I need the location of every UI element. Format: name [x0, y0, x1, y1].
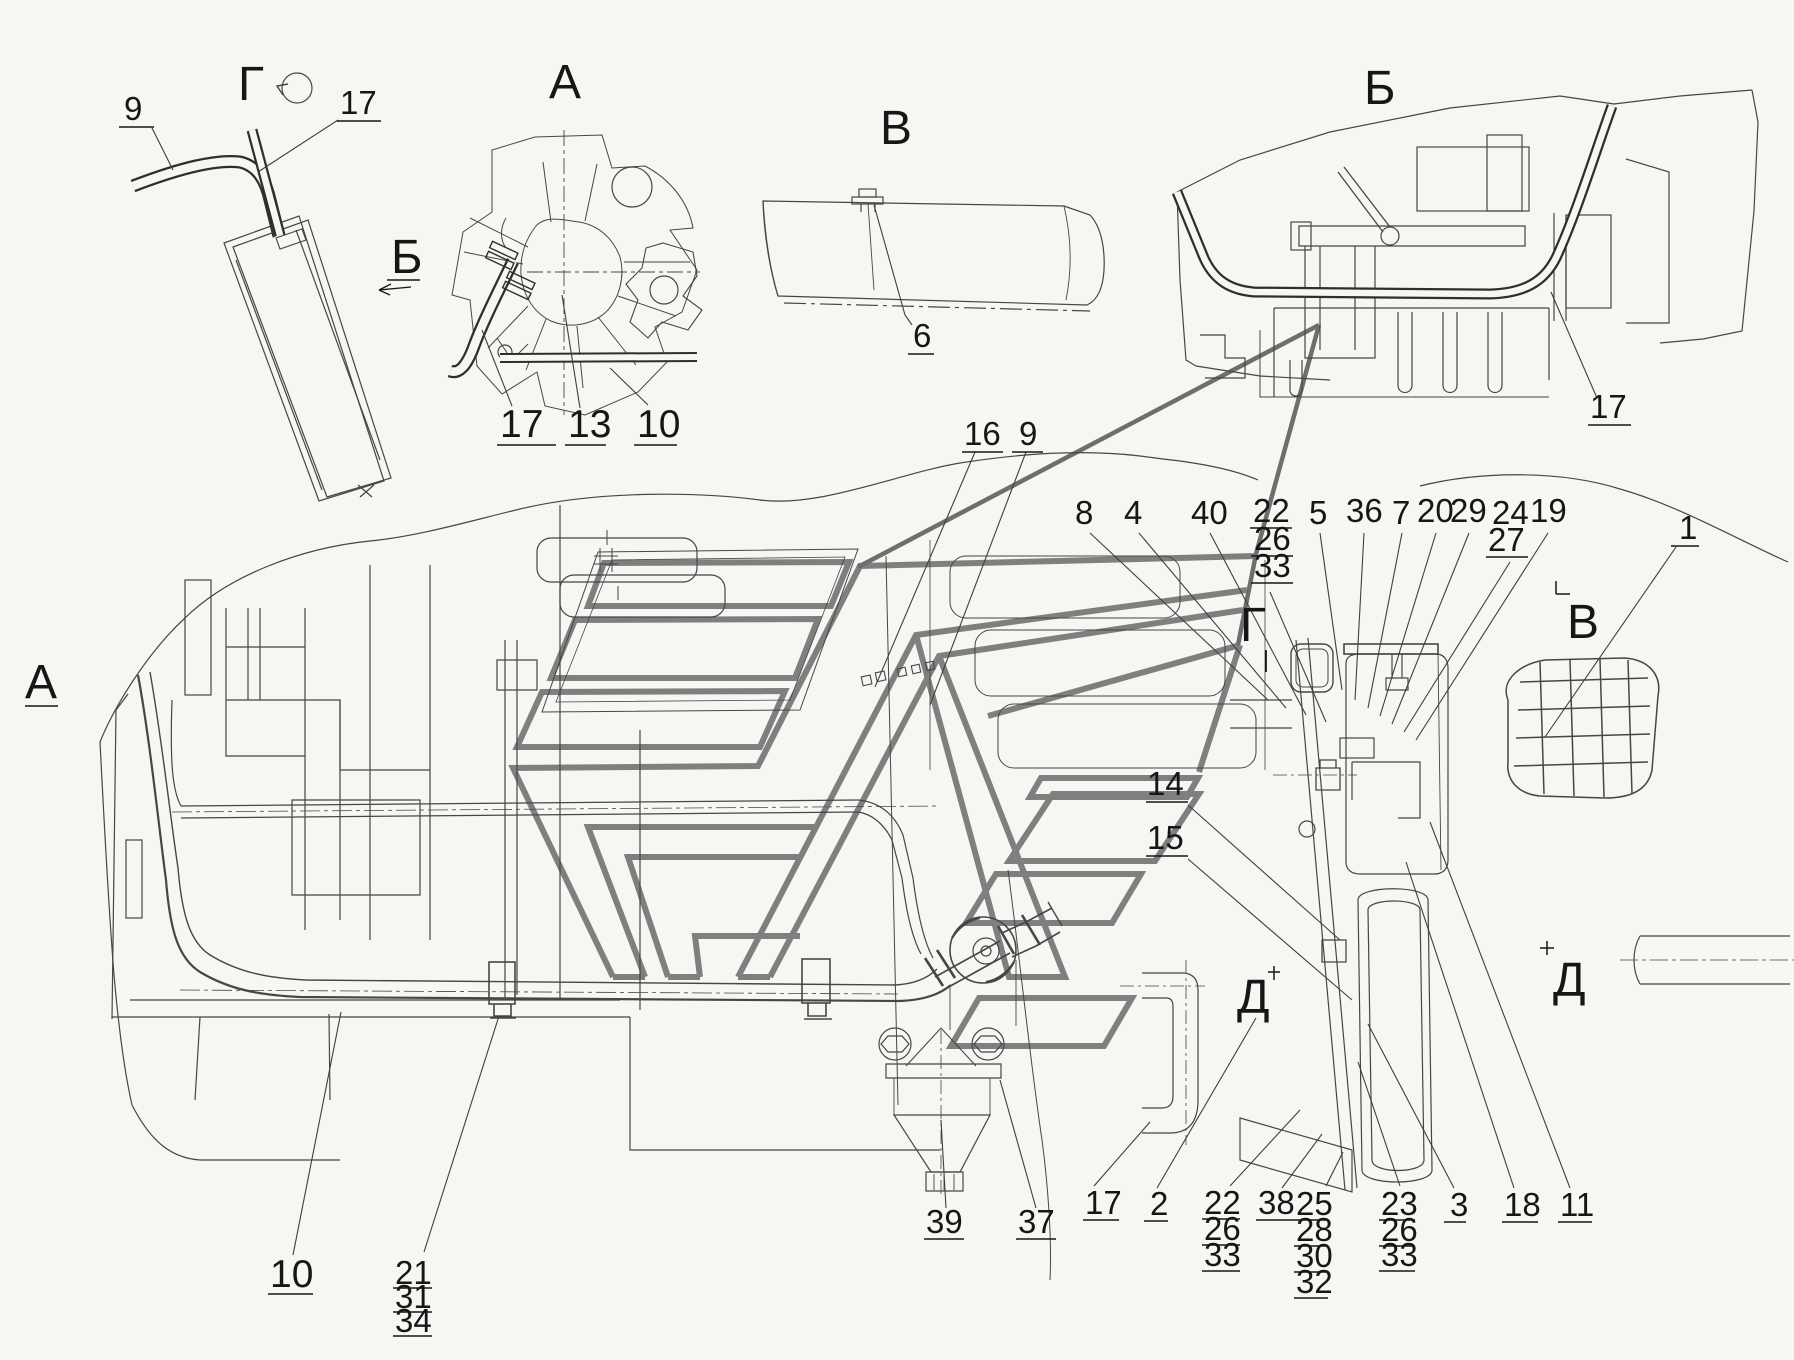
svg-text:16: 16 [964, 415, 1001, 452]
svg-text:27: 27 [1488, 521, 1525, 558]
svg-text:11: 11 [1560, 1186, 1594, 1223]
svg-text:А: А [25, 656, 57, 709]
svg-text:4: 4 [1124, 494, 1142, 531]
svg-text:2: 2 [1150, 1185, 1168, 1222]
svg-text:7: 7 [1392, 494, 1410, 531]
svg-text:8: 8 [1075, 494, 1093, 531]
svg-text:18: 18 [1504, 1186, 1541, 1223]
svg-text:Г: Г [1240, 599, 1266, 652]
svg-text:5: 5 [1309, 494, 1327, 531]
svg-text:Б: Б [1364, 62, 1396, 115]
svg-text:17: 17 [1590, 388, 1627, 425]
svg-text:33: 33 [1254, 547, 1291, 584]
svg-text:33: 33 [1204, 1236, 1241, 1273]
svg-text:40: 40 [1191, 494, 1228, 531]
svg-text:Д: Д [1237, 971, 1270, 1024]
svg-text:13: 13 [568, 403, 611, 446]
svg-text:17: 17 [340, 84, 377, 121]
svg-text:15: 15 [1147, 819, 1184, 856]
svg-text:37: 37 [1018, 1203, 1055, 1240]
svg-text:10: 10 [270, 1253, 313, 1296]
svg-text:Д: Д [1553, 954, 1586, 1007]
svg-text:9: 9 [124, 90, 142, 127]
svg-text:38: 38 [1258, 1184, 1295, 1221]
svg-text:33: 33 [1381, 1236, 1418, 1273]
svg-text:Г: Г [238, 58, 264, 111]
svg-text:В: В [1567, 596, 1599, 649]
svg-text:3: 3 [1450, 1186, 1468, 1223]
svg-text:9: 9 [1019, 415, 1037, 452]
svg-text:В: В [880, 102, 912, 155]
svg-text:17: 17 [1085, 1184, 1122, 1221]
svg-text:20: 20 [1417, 492, 1454, 529]
svg-text:14: 14 [1147, 765, 1184, 802]
svg-text:А: А [549, 56, 581, 109]
svg-text:1: 1 [1679, 509, 1697, 546]
svg-text:36: 36 [1346, 492, 1383, 529]
svg-text:34: 34 [395, 1302, 432, 1339]
svg-text:Б: Б [391, 231, 423, 284]
svg-text:32: 32 [1296, 1263, 1333, 1300]
svg-text:10: 10 [637, 403, 680, 446]
svg-text:29: 29 [1450, 492, 1487, 529]
svg-text:6: 6 [913, 317, 931, 354]
svg-text:17: 17 [500, 403, 543, 446]
svg-text:19: 19 [1530, 492, 1567, 529]
svg-text:39: 39 [926, 1203, 963, 1240]
